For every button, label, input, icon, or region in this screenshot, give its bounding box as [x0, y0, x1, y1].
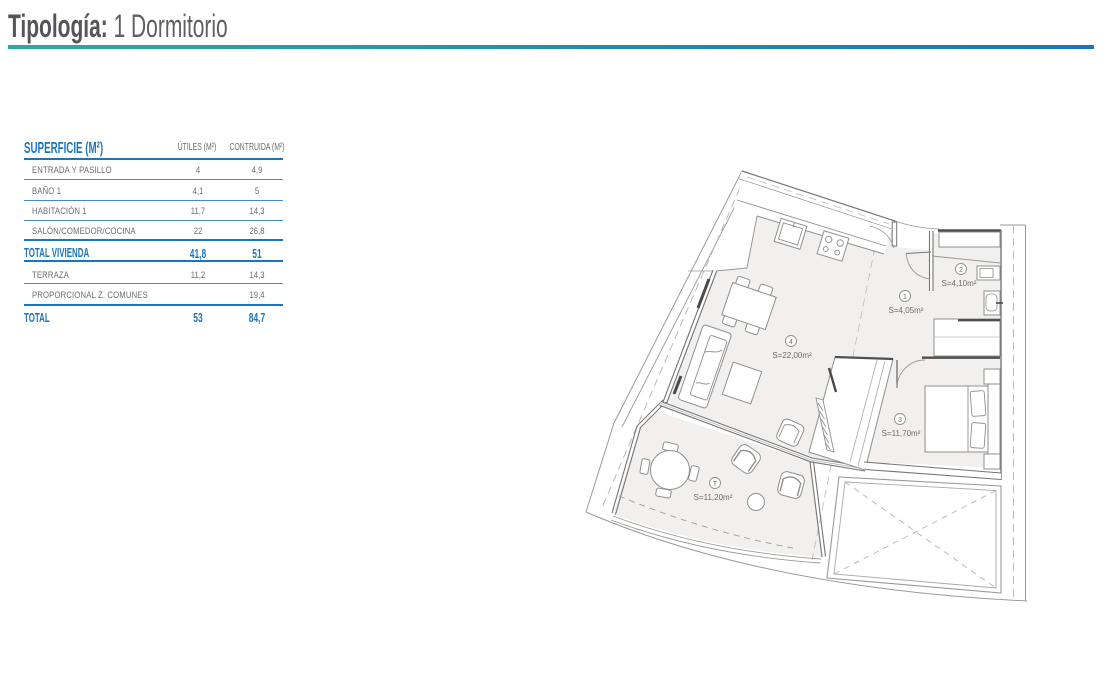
svg-text:T: T [713, 481, 718, 488]
svg-text:S=11,70m²: S=11,70m² [882, 429, 921, 438]
svg-text:1: 1 [903, 294, 907, 301]
svg-text:S=4,05m²: S=4,05m² [889, 306, 924, 315]
svg-text:S=22,00m²: S=22,00m² [772, 351, 812, 360]
svg-text:2: 2 [959, 267, 963, 274]
svg-text:4: 4 [789, 339, 793, 346]
svg-text:3: 3 [898, 417, 902, 424]
svg-text:S=11,20m²: S=11,20m² [694, 493, 733, 502]
svg-text:S=4,10m²: S=4,10m² [942, 279, 977, 288]
